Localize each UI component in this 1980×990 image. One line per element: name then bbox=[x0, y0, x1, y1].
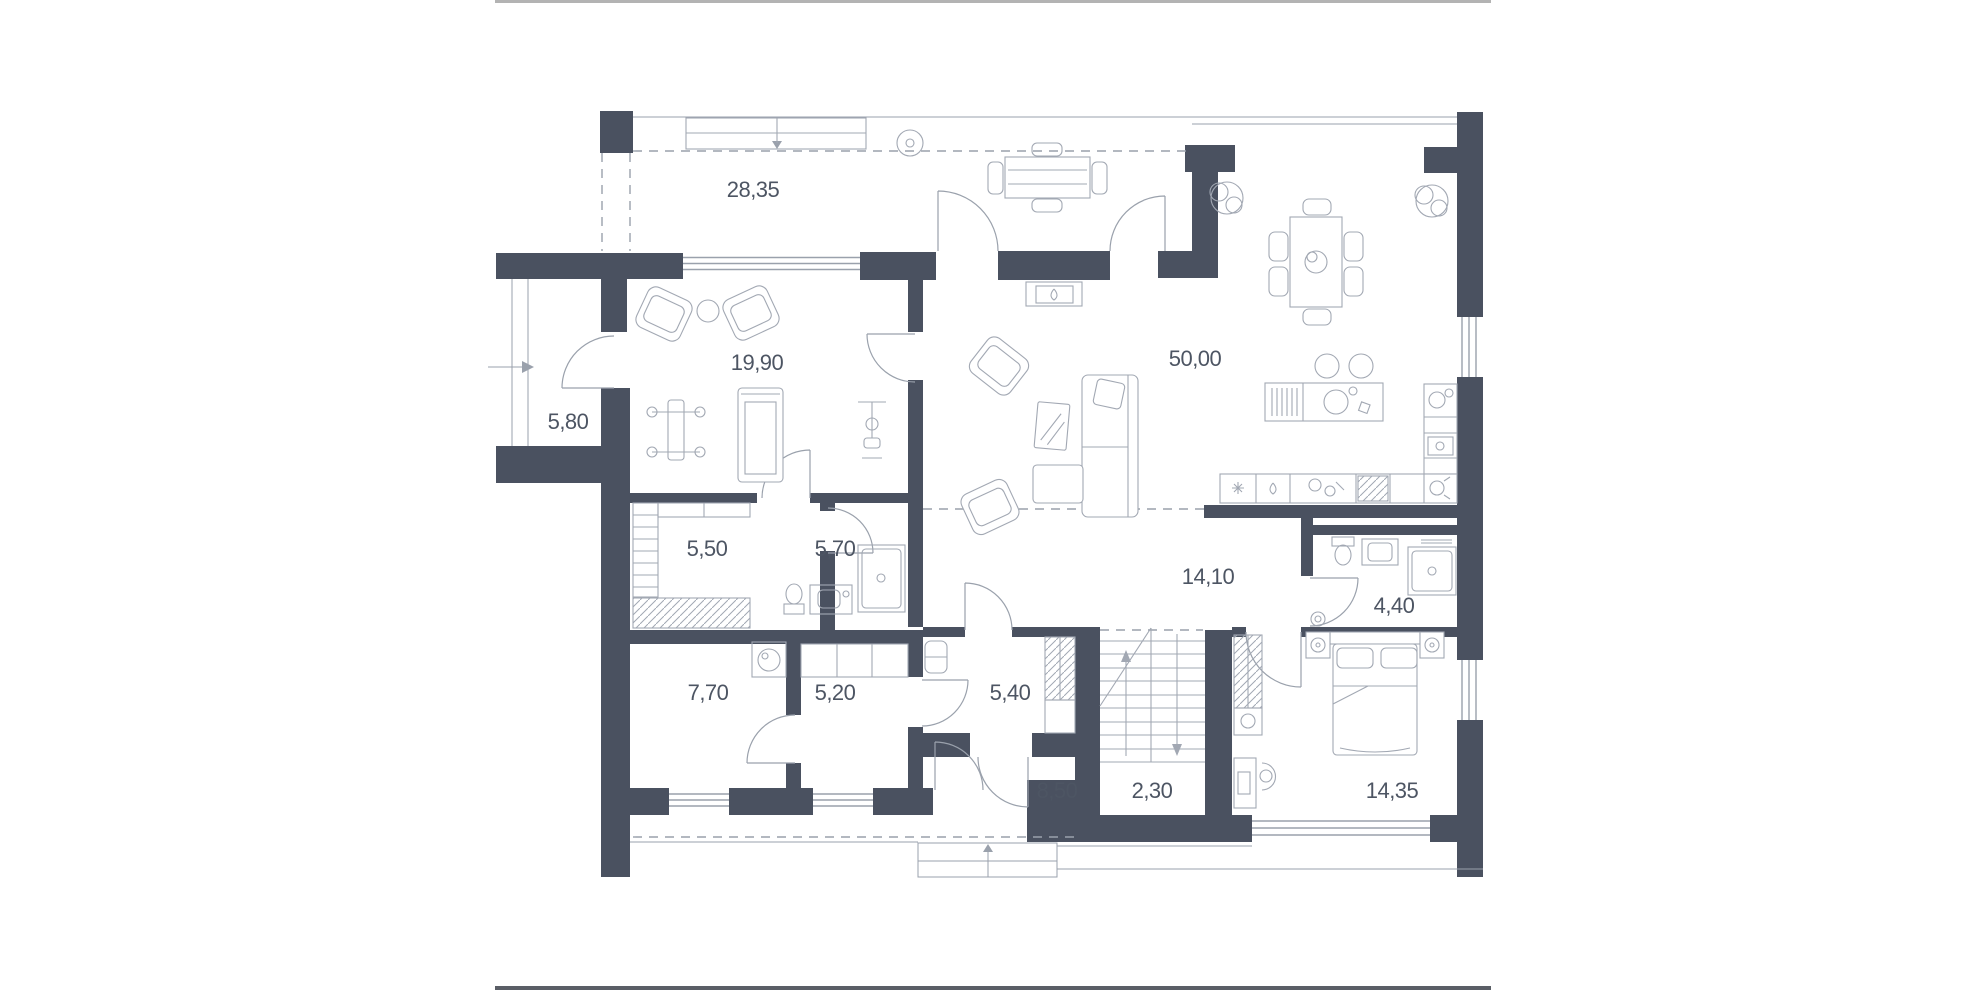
washing-machine bbox=[752, 642, 786, 677]
frame-bottom-line bbox=[495, 986, 1491, 990]
toilet bbox=[1332, 537, 1354, 565]
room-area-label-side-porch: 5,80 bbox=[548, 409, 589, 434]
window-laundry bbox=[669, 794, 729, 806]
window-kitchen-right bbox=[1462, 317, 1476, 377]
room-area-label-stairs: 2,30 bbox=[1132, 778, 1173, 803]
ceiling-fan-icon bbox=[897, 130, 923, 156]
toilet bbox=[784, 584, 804, 614]
room-area-label-entry: 8,50 bbox=[1037, 778, 1078, 803]
door-terrace-left bbox=[938, 191, 998, 251]
room-area-label-inner-hall: 5,40 bbox=[990, 680, 1031, 705]
bed bbox=[1330, 632, 1420, 755]
sauna-heater bbox=[633, 598, 750, 628]
floor-plan-page: 28,35 5,80 19,90 50,00 5,50 5,70 14,10 4… bbox=[0, 0, 1980, 990]
desk bbox=[1234, 758, 1256, 808]
cabinet-row bbox=[801, 644, 908, 677]
door-side-porch bbox=[562, 336, 614, 388]
floor-plan-drawing: 28,35 5,80 19,90 50,00 5,50 5,70 14,10 4… bbox=[0, 0, 1980, 990]
plant-icon bbox=[1311, 612, 1325, 626]
window-bedroom-right bbox=[1462, 660, 1476, 720]
room-area-label-sauna: 5,50 bbox=[687, 536, 728, 561]
room-area-label-laundry: 7,70 bbox=[688, 680, 729, 705]
window-bedroom-bottom bbox=[1252, 821, 1430, 835]
kitchen-island bbox=[1265, 383, 1383, 421]
shower bbox=[858, 545, 905, 612]
room-area-label-bedroom: 14,35 bbox=[1366, 778, 1419, 803]
sofa-chaise bbox=[1033, 465, 1083, 503]
room-area-label-boot-room: 5,20 bbox=[815, 680, 856, 705]
side-table-icon bbox=[697, 300, 719, 322]
nightstand bbox=[1306, 632, 1330, 658]
wardrobe bbox=[1234, 635, 1262, 708]
kitchen-counter-right bbox=[1424, 384, 1457, 474]
fireplace bbox=[1026, 282, 1082, 306]
frame-top-line bbox=[495, 0, 1491, 3]
door-inner-hall-north bbox=[965, 583, 1012, 630]
room-area-label-hallway: 14,10 bbox=[1182, 564, 1235, 589]
room-area-label-bathroom: 4,40 bbox=[1374, 593, 1415, 618]
exercise-bike bbox=[858, 402, 886, 458]
door-laundry bbox=[747, 715, 795, 763]
room-area-label-gym: 19,90 bbox=[731, 350, 784, 375]
armchair bbox=[720, 283, 782, 343]
window-gym-terrace bbox=[683, 258, 860, 270]
treadmill bbox=[738, 388, 783, 482]
shower bbox=[1408, 547, 1456, 595]
window-boot-room bbox=[813, 794, 873, 806]
dining-table bbox=[1269, 199, 1363, 325]
door-inner-hall-west bbox=[922, 680, 968, 726]
armchair bbox=[633, 284, 695, 344]
plant-icon bbox=[1415, 185, 1448, 217]
armchair bbox=[966, 333, 1032, 398]
kitchen-counter-bottom bbox=[1220, 474, 1457, 503]
room-area-label-terrace: 28,35 bbox=[727, 177, 780, 202]
door-inner-hall-south bbox=[978, 757, 1028, 807]
towel-rail bbox=[1421, 540, 1452, 543]
weight-bench bbox=[647, 400, 705, 460]
door-bathroom bbox=[1310, 578, 1358, 626]
room-area-label-shower-room: 5,70 bbox=[815, 536, 856, 561]
sauna-bench bbox=[633, 503, 658, 597]
desk-chair bbox=[1260, 763, 1276, 790]
wardrobe bbox=[1045, 637, 1075, 700]
leaning-mirror bbox=[1034, 402, 1070, 451]
sauna-shelf bbox=[658, 503, 750, 517]
cabinet bbox=[1045, 700, 1075, 733]
door-terrace-right bbox=[1110, 196, 1165, 251]
door-gym bbox=[867, 334, 915, 382]
shelf-unit bbox=[1234, 708, 1262, 735]
bar-stool-icon bbox=[1315, 354, 1339, 378]
vanity-sink bbox=[1362, 539, 1398, 565]
nightstand bbox=[1420, 632, 1444, 658]
arrow-head-porch-up bbox=[983, 844, 993, 852]
bar-stool-icon bbox=[1349, 354, 1373, 378]
room-area-label-living: 50,00 bbox=[1169, 346, 1222, 371]
terrace-dining-table bbox=[988, 143, 1107, 212]
hall-bench bbox=[925, 641, 947, 673]
staircase bbox=[1100, 628, 1205, 762]
furniture-layer bbox=[633, 118, 1457, 808]
side-porch-steps bbox=[512, 279, 528, 446]
armchair bbox=[958, 476, 1022, 537]
